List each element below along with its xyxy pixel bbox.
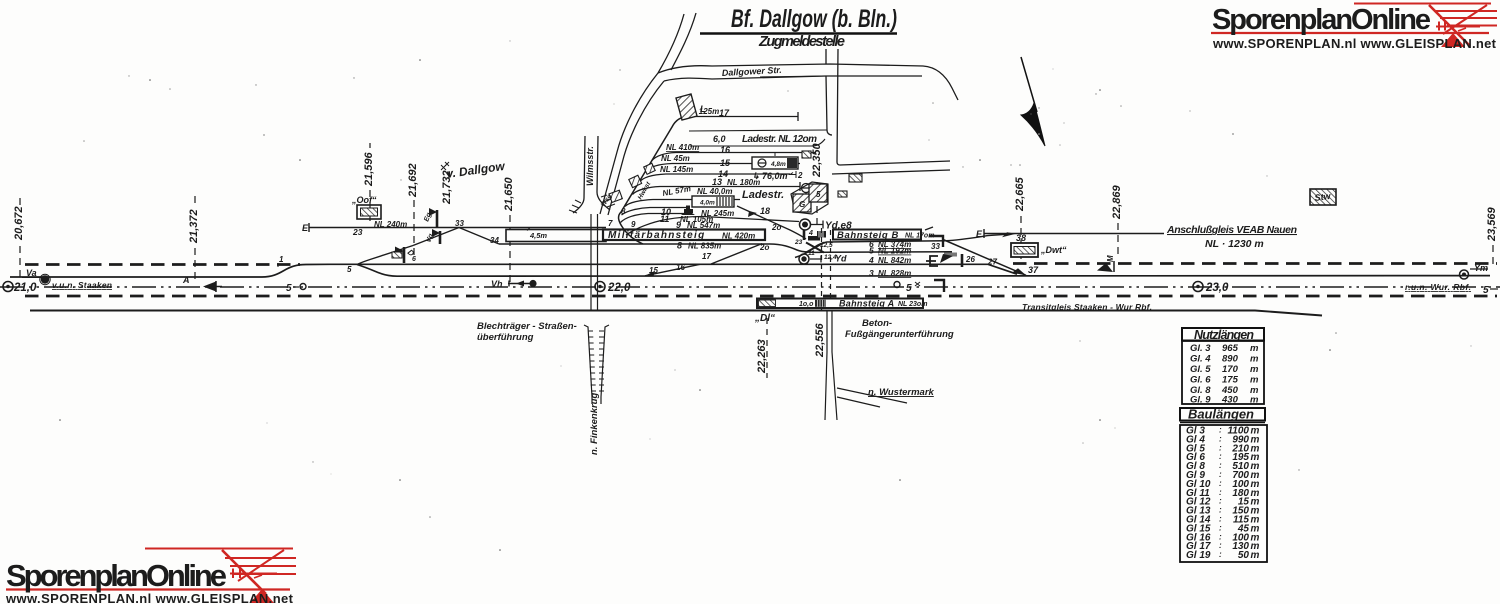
svg-text:Baulängen: Baulängen	[1188, 407, 1254, 422]
svg-text::: :	[1219, 523, 1222, 532]
svg-text::: :	[1219, 550, 1222, 559]
svg-text:Fußgängerunterführung: Fußgängerunterführung	[845, 329, 954, 340]
svg-text:4,8m: 4,8m	[770, 161, 786, 168]
svg-text:NL 145m: NL 145m	[660, 165, 693, 174]
svg-text:Ladestr. NL 12om: Ladestr. NL 12om	[742, 134, 817, 145]
svg-text:2: 2	[797, 171, 803, 180]
svg-text::: :	[1219, 443, 1222, 452]
svg-text:4: 4	[868, 255, 874, 265]
svg-text:23,0: 23,0	[1205, 282, 1229, 294]
svg-text:m: m	[1250, 343, 1259, 354]
svg-text::: :	[1219, 497, 1222, 506]
svg-text:22,665: 22,665	[1014, 176, 1026, 212]
svg-text:Beton-: Beton-	[862, 318, 892, 329]
svg-text:9: 9	[676, 220, 681, 230]
svg-text:L: L	[700, 104, 706, 114]
svg-text:33: 33	[931, 242, 940, 251]
svg-text:E: E	[302, 223, 309, 233]
svg-text:27: 27	[987, 258, 997, 267]
svg-text:5: 5	[906, 283, 912, 294]
svg-text::: :	[1219, 470, 1222, 479]
svg-text:4,5m: 4,5m	[529, 231, 547, 240]
svg-text:m: m	[1250, 354, 1259, 365]
svg-text:890: 890	[1222, 354, 1239, 365]
svg-text:Ladestr.: Ladestr.	[742, 189, 784, 201]
svg-text:„Dl“: „Dl“	[754, 313, 775, 324]
svg-text:NL 40,0m: NL 40,0m	[697, 187, 732, 196]
svg-text:2o: 2o	[771, 223, 781, 232]
svg-text:NL 835m: NL 835m	[688, 242, 721, 251]
svg-text:NL 180m: NL 180m	[727, 178, 760, 187]
svg-text:Vh: Vh	[491, 279, 503, 289]
svg-text:5: 5	[347, 265, 352, 274]
svg-text:22,556: 22,556	[814, 322, 826, 358]
svg-text:Gl. 3: Gl. 3	[1190, 343, 1211, 354]
svg-text:15: 15	[649, 266, 658, 275]
svg-text:m: m	[1250, 364, 1259, 375]
svg-text:Gl. 5: Gl. 5	[1190, 364, 1211, 375]
svg-text:m: m	[1250, 395, 1259, 406]
svg-text::: :	[1219, 426, 1222, 435]
svg-text:m: m	[1251, 550, 1260, 561]
svg-text:A: A	[182, 275, 190, 285]
svg-text:Bahnsteig A: Bahnsteig A	[839, 299, 894, 309]
svg-text:6,0: 6,0	[713, 134, 726, 144]
svg-text:37: 37	[1028, 265, 1039, 275]
svg-text:www.SPORENPLAN.nl www.GLEISPL: www.SPORENPLAN.nl www.GLEISPLAN.net	[5, 591, 294, 604]
svg-text::: :	[1219, 434, 1222, 443]
svg-text:21,0: 21,0	[13, 282, 37, 294]
svg-text:Gl. 9: Gl. 9	[1190, 395, 1211, 406]
svg-text:NL 842m: NL 842m	[878, 256, 911, 265]
svg-text:Va: Va	[26, 268, 37, 278]
svg-text:21,650: 21,650	[503, 176, 515, 212]
svg-text:22,0: 22,0	[607, 282, 631, 294]
svg-text:v.u.n. Staaken: v.u.n. Staaken	[52, 280, 112, 290]
svg-text:170: 170	[1222, 364, 1239, 375]
svg-text:4: 4	[808, 230, 813, 237]
svg-text:10: 10	[661, 207, 671, 217]
svg-text:17: 17	[719, 108, 730, 118]
svg-text:26: 26	[965, 255, 975, 264]
svg-text:E: E	[976, 229, 983, 239]
svg-text:Zugmeldestelle: Zugmeldestelle	[758, 34, 845, 50]
svg-text:Ym: Ym	[1474, 263, 1488, 273]
svg-text:NL 547m: NL 547m	[687, 221, 720, 230]
svg-text:„Oof“: „Oof“	[351, 195, 377, 205]
svg-text:4,0m: 4,0m	[699, 200, 715, 207]
svg-text:18: 18	[760, 206, 770, 216]
svg-text:23: 23	[352, 227, 363, 237]
svg-text:22,869: 22,869	[1111, 184, 1123, 220]
svg-text:3: 3	[869, 268, 874, 278]
svg-text:23: 23	[794, 239, 803, 246]
svg-text:5: 5	[286, 283, 292, 294]
svg-text::: :	[1219, 506, 1222, 515]
svg-text:Gl. 6: Gl. 6	[1190, 375, 1211, 386]
svg-text:M: M	[1106, 255, 1115, 262]
svg-text:16: 16	[676, 263, 685, 272]
svg-text::: :	[1219, 541, 1222, 550]
svg-text:Anschlußgleis VEAB Nauen: Anschlußgleis VEAB Nauen	[1166, 224, 1297, 236]
svg-text:15: 15	[720, 158, 731, 168]
svg-text:Gl 19: Gl 19	[1186, 550, 1211, 561]
svg-text:Yd: Yd	[835, 254, 847, 264]
svg-text:1: 1	[279, 255, 284, 264]
svg-text:NL 410m: NL 410m	[666, 143, 699, 152]
svg-text:5: 5	[1483, 285, 1489, 296]
svg-text:NL 192m: NL 192m	[878, 247, 911, 256]
svg-text:1o,o: 1o,o	[799, 301, 814, 308]
svg-text:n. Wustermark: n. Wustermark	[868, 387, 935, 398]
svg-text:NL 240m: NL 240m	[374, 220, 407, 229]
svg-text:„Dwt“: „Dwt“	[1040, 245, 1067, 255]
svg-text::: :	[1219, 452, 1222, 461]
svg-text:NL 828m: NL 828m	[878, 269, 911, 278]
svg-text:NL 420m: NL 420m	[722, 232, 755, 241]
svg-text:r.u.n. Wur. Rbf.: r.u.n. Wur. Rbf.	[1405, 282, 1471, 292]
svg-text:9: 9	[631, 220, 636, 229]
svg-text:6: 6	[412, 256, 416, 263]
svg-text:Gl. 4: Gl. 4	[1190, 354, 1211, 365]
svg-text:33: 33	[455, 219, 464, 228]
svg-text:Militärbahnsteig: Militärbahnsteig	[608, 230, 705, 241]
svg-text:17: 17	[702, 252, 711, 261]
svg-text:SporenplanOnline: SporenplanOnline	[6, 558, 227, 593]
svg-text::: :	[1219, 461, 1222, 470]
svg-text:7: 7	[608, 219, 613, 228]
svg-text:965: 965	[1222, 343, 1239, 354]
svg-text:175: 175	[1222, 375, 1239, 386]
svg-text:SporenplanOnline: SporenplanOnline	[1212, 4, 1431, 36]
svg-text:23,569: 23,569	[1486, 206, 1498, 242]
svg-text:www.SPORENPLAN.nl www.GLEISPL: www.SPORENPLAN.nl www.GLEISPLAN.net	[1212, 36, 1497, 51]
svg-text:20,672: 20,672	[13, 206, 25, 241]
svg-text:m: m	[1250, 375, 1259, 386]
svg-text:21,372: 21,372	[188, 209, 200, 244]
svg-text:430: 430	[1221, 395, 1239, 406]
svg-text:NL 23om: NL 23om	[898, 301, 927, 308]
svg-text::: :	[1219, 488, 1222, 497]
svg-text:Wilmsstr.: Wilmsstr.	[585, 146, 595, 186]
svg-text::: :	[1219, 515, 1222, 524]
svg-text:8: 8	[677, 241, 682, 251]
svg-text:5: 5	[869, 246, 874, 256]
svg-text::: :	[1219, 532, 1222, 541]
svg-text:Nutzlängen: Nutzlängen	[1194, 328, 1254, 342]
svg-text:NL 45m: NL 45m	[661, 154, 690, 163]
svg-text:v. Dallgow: v. Dallgow	[445, 159, 506, 181]
svg-text:21,692: 21,692	[407, 163, 419, 198]
svg-text::: :	[1219, 479, 1222, 488]
svg-text:Bf. Dallgow (b. Bln.): Bf. Dallgow (b. Bln.)	[731, 5, 897, 33]
svg-text:überführung: überführung	[477, 332, 534, 343]
svg-text:50: 50	[1238, 550, 1250, 561]
svg-text:NL · 1230 m: NL · 1230 m	[1205, 238, 1264, 250]
svg-text:11: 11	[808, 250, 815, 257]
svg-text:13: 13	[712, 177, 722, 187]
svg-text:22,263: 22,263	[756, 339, 768, 374]
svg-text:21,596: 21,596	[363, 151, 375, 187]
svg-text:G: G	[799, 200, 805, 209]
svg-text:22,350: 22,350	[811, 142, 823, 178]
svg-text:8: 8	[621, 207, 626, 216]
svg-text:n. Finkenkrug: n. Finkenkrug	[589, 393, 600, 455]
svg-text:Transitgleis Staaken - Wur Rbf: Transitgleis Staaken - Wur Rbf.	[1022, 302, 1152, 312]
svg-text:Blechträger - Straßen-: Blechträger - Straßen-	[477, 321, 577, 332]
svg-text:38: 38	[1016, 233, 1026, 243]
svg-text:Dallgower Str.: Dallgower Str.	[722, 65, 782, 78]
svg-text:34: 34	[490, 236, 499, 245]
svg-text:5: 5	[816, 190, 821, 199]
